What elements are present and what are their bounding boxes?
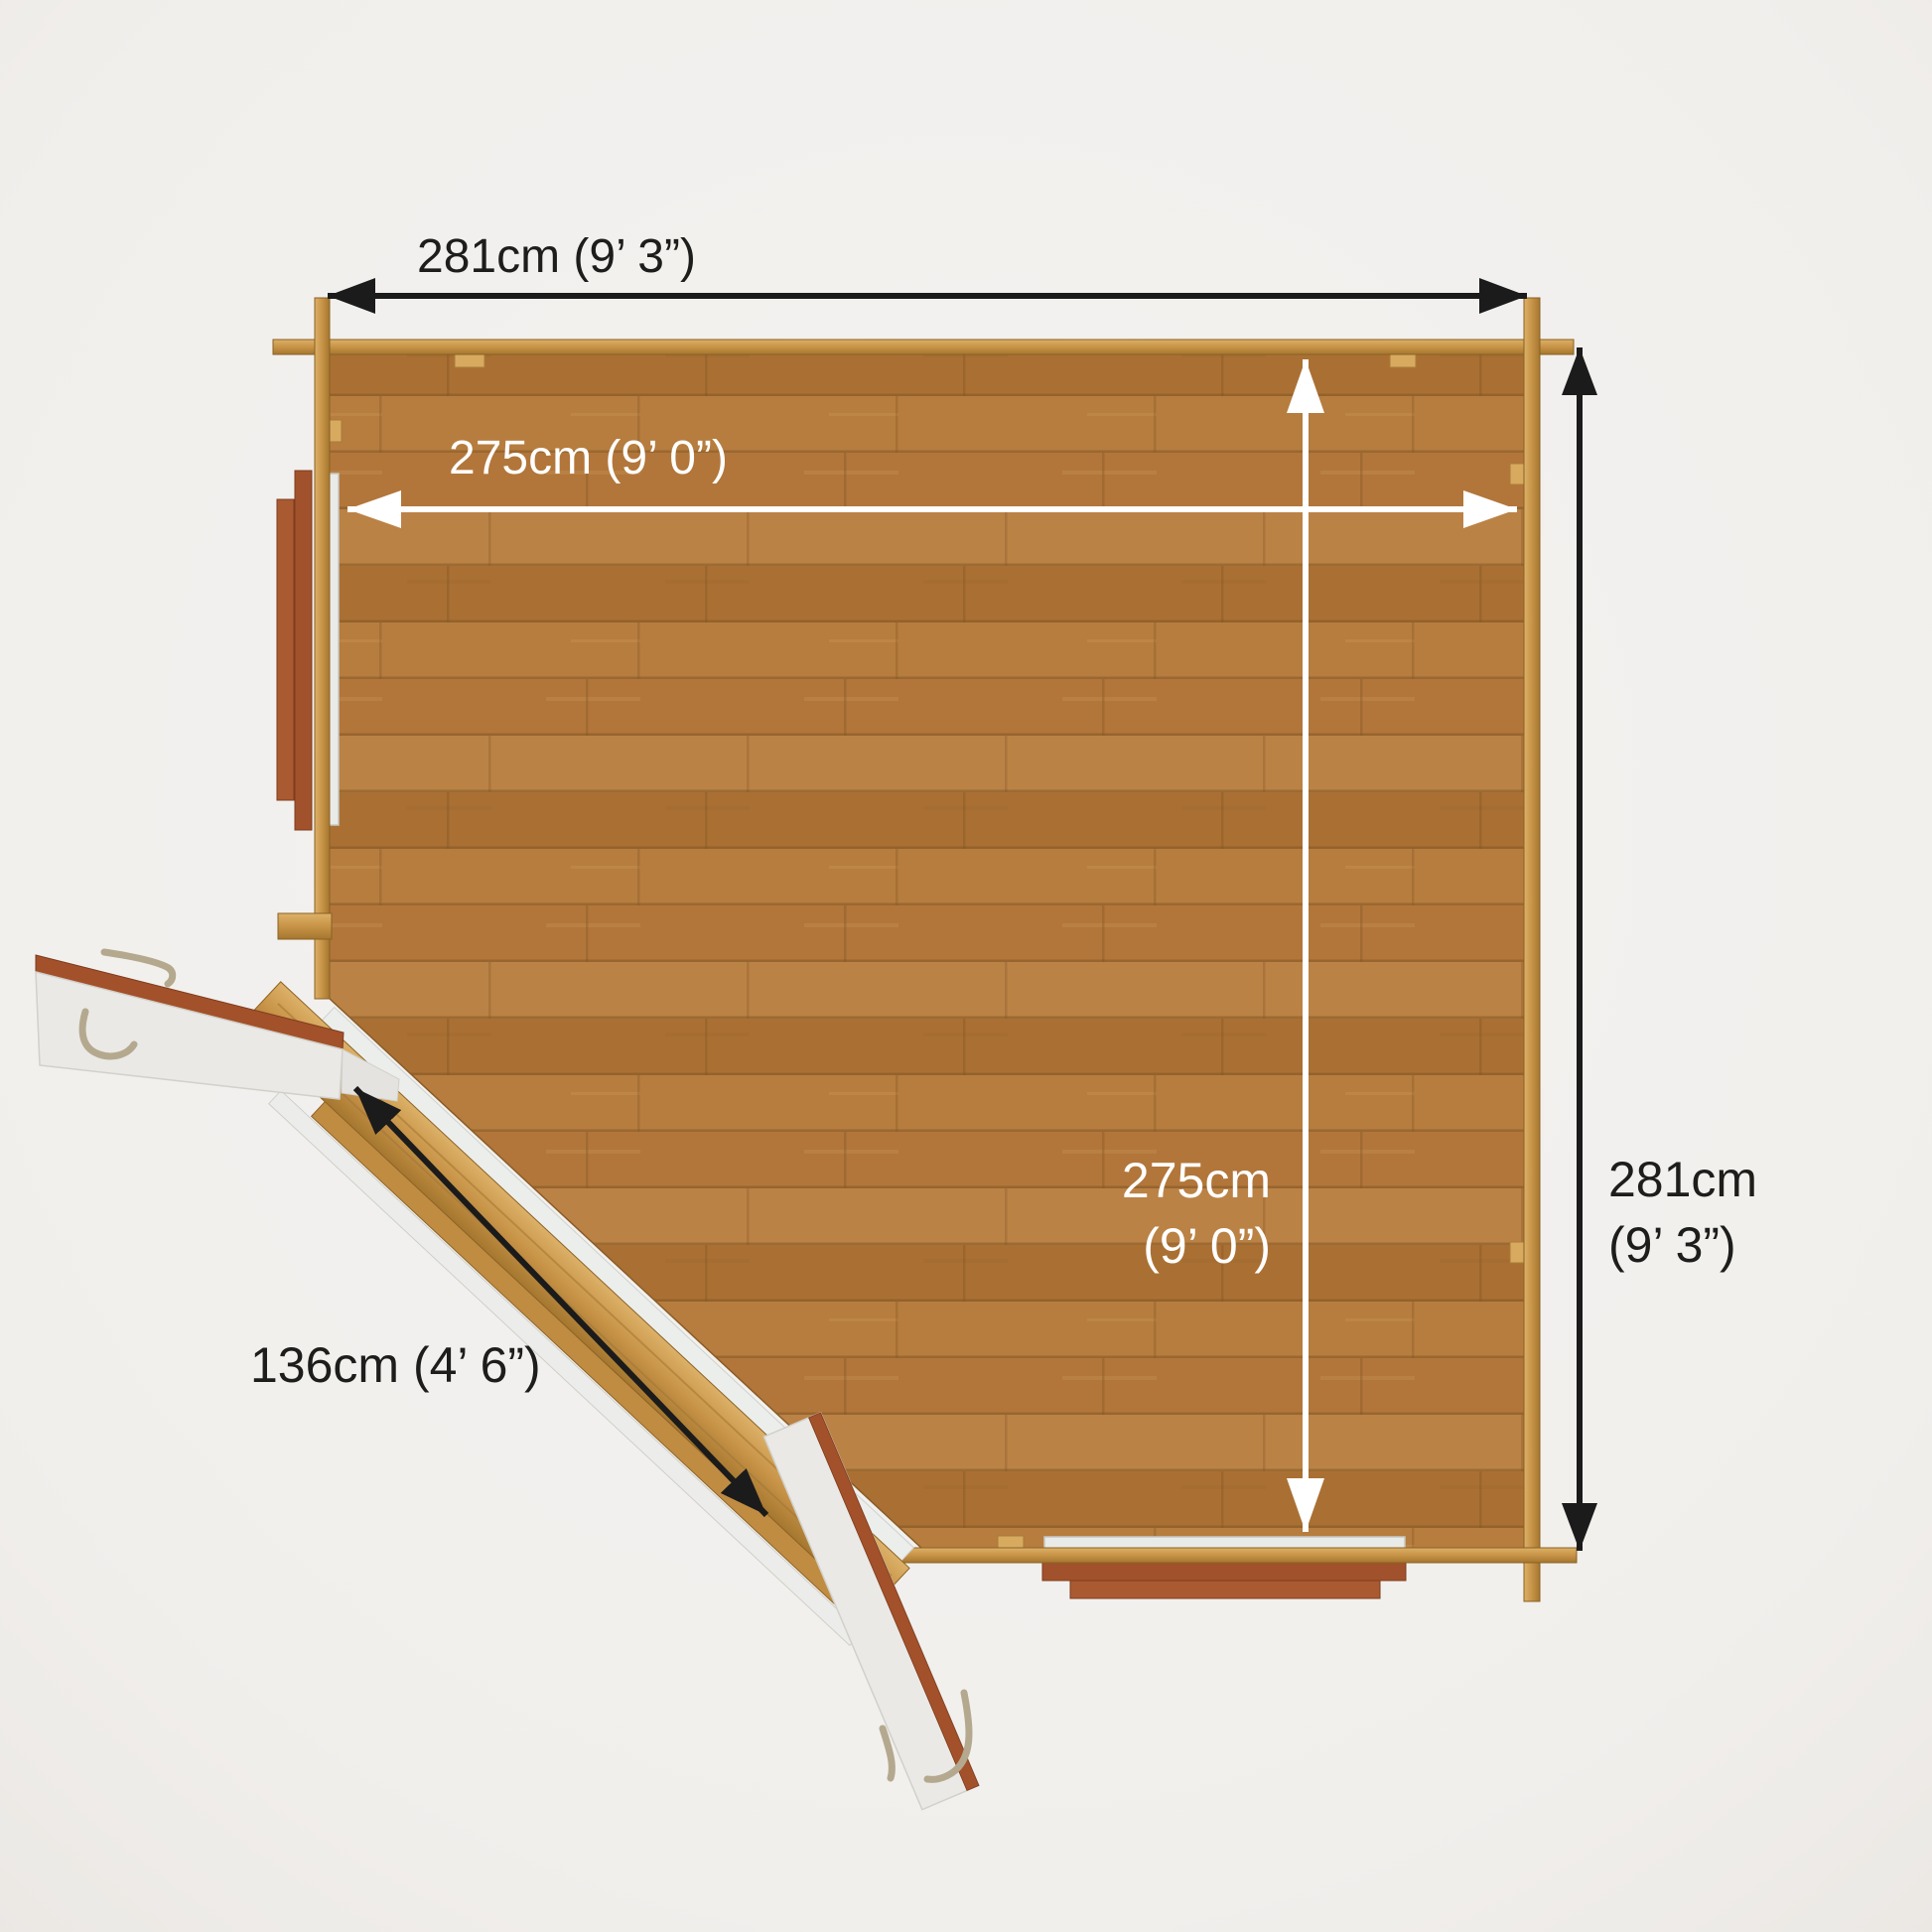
dim-label-outer-depth-line1: 281cm (1608, 1152, 1757, 1207)
bottom-window-sill (1042, 1563, 1406, 1581)
dim-label-outer-width: 281cm (9’ 3”) (417, 230, 696, 283)
dim-label-outer-depth-line2: (9’ 3”) (1608, 1217, 1736, 1273)
bottom-window-sill-outer (1070, 1581, 1380, 1598)
left-wall-beam (315, 298, 330, 999)
top-wall-beam (273, 340, 1574, 354)
dim-label-inner-depth-line2: (9’ 0”) (1143, 1218, 1271, 1274)
corner-joint-tab (998, 1536, 1024, 1549)
floor-plan-svg: 281cm (9’ 3”) 275cm (9’ 0”) 275cm (9’ 0”… (0, 0, 1932, 1932)
corner-joint-tab (455, 353, 484, 367)
bottom-window-glazing (1044, 1537, 1405, 1549)
right-wall-beam (1524, 298, 1540, 1601)
dim-label-door-width: 136cm (4’ 6”) (250, 1337, 541, 1393)
diagonal-corner-stub (278, 913, 332, 939)
floor-plan-diagram: 281cm (9’ 3”) 275cm (9’ 0”) 275cm (9’ 0”… (0, 0, 1932, 1932)
left-window-sill (295, 471, 312, 830)
bottom-window (1042, 1537, 1406, 1598)
bottom-wall-beam (871, 1548, 1577, 1563)
dim-label-inner-depth-line1: 275cm (1122, 1153, 1271, 1208)
left-window-sill-outer (277, 499, 294, 800)
corner-joint-tab (1390, 353, 1416, 367)
dim-label-inner-width: 275cm (9’ 0”) (449, 432, 728, 484)
